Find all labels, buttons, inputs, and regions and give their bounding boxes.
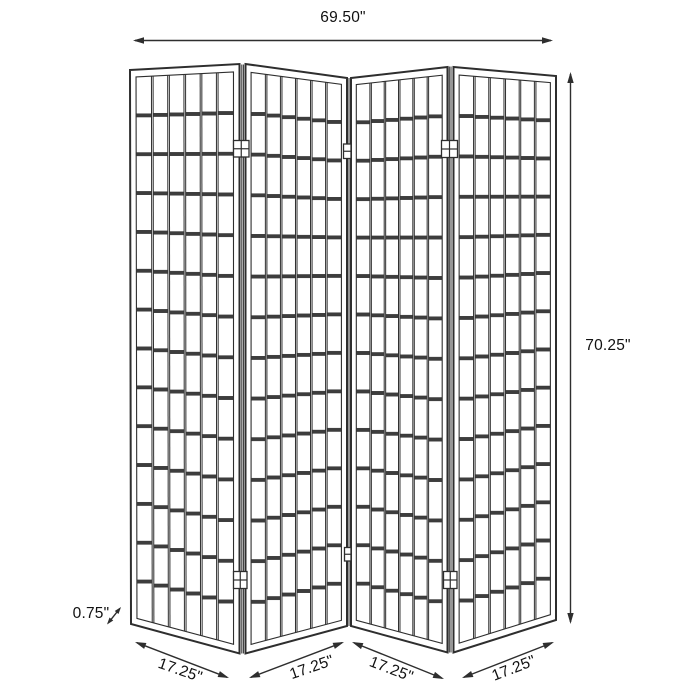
- grid-rail: [267, 436, 281, 439]
- grid-rail: [297, 393, 311, 396]
- grid-rail: [154, 388, 169, 391]
- grid-rail: [137, 541, 152, 544]
- grid-rail: [521, 543, 535, 546]
- grid-rail: [459, 397, 473, 400]
- grid-rail: [459, 276, 473, 279]
- grid-rail: [282, 275, 296, 278]
- grid-rail: [267, 315, 281, 318]
- grid-rail: [521, 311, 535, 314]
- grid-rail: [414, 196, 427, 199]
- grid-rail: [327, 505, 341, 508]
- grid-rail: [282, 553, 296, 556]
- grid-rail: [218, 559, 233, 562]
- grid-rail: [521, 427, 535, 430]
- width-dimension-arrow-head-start: [133, 37, 144, 43]
- hinge-bottom-1-2: [234, 572, 248, 589]
- grid-rail: [282, 434, 296, 437]
- grid-rail: [536, 157, 550, 160]
- grid-rail: [521, 118, 535, 121]
- grid-rail: [202, 434, 216, 437]
- grid-rail: [297, 314, 311, 317]
- grid-rail: [414, 116, 427, 119]
- grid-rail: [414, 156, 427, 159]
- grid-rail: [429, 600, 443, 603]
- grid-rail: [153, 113, 168, 116]
- grid-rail: [267, 275, 281, 278]
- grid-rail: [386, 550, 399, 553]
- grid-rail: [371, 275, 384, 278]
- grid-rail: [475, 395, 489, 398]
- grid-rail: [251, 559, 265, 562]
- grid-rail: [371, 158, 384, 161]
- grid-rail: [251, 275, 265, 278]
- grid-rail: [170, 350, 185, 353]
- grid-rail: [327, 236, 341, 239]
- grid-rail: [371, 197, 384, 200]
- grid-rail: [400, 236, 413, 239]
- grid-rail: [186, 392, 201, 395]
- grid-rail: [475, 195, 489, 198]
- grid-rail: [312, 391, 326, 394]
- grid-rail: [153, 349, 168, 352]
- grid-rail: [137, 580, 152, 583]
- grid-rail: [251, 600, 265, 603]
- grid-rail: [414, 276, 427, 279]
- grid-rail: [356, 159, 370, 162]
- grid-rail: [282, 195, 296, 198]
- grid-rail: [490, 195, 504, 198]
- panel-width-arrow-1-head-end: [218, 671, 229, 678]
- grid-rail: [153, 270, 168, 273]
- grid-rail: [218, 518, 233, 521]
- grid-rail: [536, 119, 550, 122]
- grid-rail: [386, 354, 399, 357]
- grid-rail: [218, 478, 233, 481]
- grid-rail: [356, 467, 370, 470]
- room-divider-dimension-diagram: 69.50" 70.25" 0.75" 17.25" 17.25" 17.25"…: [0, 0, 700, 700]
- grid-rail: [297, 235, 311, 238]
- grid-rail: [202, 313, 217, 316]
- grid-rail: [170, 588, 184, 591]
- grid-rail: [186, 352, 201, 355]
- grid-rail: [186, 112, 201, 115]
- grid-rail: [490, 472, 504, 475]
- grid-rail: [170, 271, 185, 274]
- grid-rail: [218, 193, 233, 196]
- grid-rail: [169, 113, 184, 116]
- grid-rail: [251, 153, 265, 156]
- height-dimension-arrow-head-start: [567, 72, 573, 83]
- grid-rail: [154, 545, 168, 548]
- grid-rail: [429, 115, 443, 118]
- grid-rail: [429, 276, 443, 279]
- grid-rail: [218, 111, 233, 114]
- grid-rail: [169, 192, 184, 195]
- grid-rail: [414, 556, 427, 559]
- grid-rail: [414, 396, 427, 399]
- grid-rail: [218, 356, 233, 359]
- grid-rail: [475, 315, 489, 318]
- grid-rail: [312, 430, 326, 433]
- grid-rail: [218, 233, 233, 236]
- grid-rail: [459, 114, 473, 117]
- grid-rail: [202, 112, 217, 115]
- panel-width-arrow-3-head-start: [352, 642, 363, 649]
- grid-rail: [356, 390, 370, 393]
- grid-rail: [536, 348, 550, 351]
- grid-rail: [490, 156, 504, 159]
- grid-rail: [312, 586, 326, 589]
- grid-rail: [414, 356, 427, 359]
- grid-rail: [267, 476, 281, 479]
- grid-rail: [459, 235, 473, 238]
- grid-rail: [202, 192, 217, 195]
- grid-rail: [136, 114, 151, 117]
- grid-rail: [459, 437, 473, 440]
- grid-rail: [202, 273, 217, 276]
- grid-rail: [475, 554, 489, 557]
- grid-rail: [521, 234, 535, 237]
- grid-rail: [536, 462, 550, 465]
- grid-rail: [429, 559, 443, 562]
- grid-rail: [506, 273, 520, 276]
- grid-rail: [327, 159, 341, 162]
- grid-rail: [429, 438, 443, 441]
- grid-rail: [327, 197, 341, 200]
- height-dimension-arrow-head-end: [567, 613, 573, 624]
- hinge-top-2-3: [344, 144, 352, 159]
- grid-rail: [312, 469, 326, 472]
- grid-rail: [282, 314, 296, 317]
- grid-rail: [170, 509, 184, 512]
- grid-rail: [475, 155, 489, 158]
- grid-rail: [282, 155, 296, 158]
- grid-rail: [267, 516, 281, 519]
- panel-width-arrow-2-head-start: [249, 671, 260, 678]
- grid-rail: [251, 356, 265, 359]
- grid-rail: [202, 233, 217, 236]
- grid-rail: [506, 508, 520, 511]
- grid-rail: [170, 232, 185, 235]
- grid-rail: [490, 235, 504, 238]
- grid-rail: [536, 195, 550, 198]
- grid-rail: [218, 274, 233, 277]
- grid-rail: [282, 474, 296, 477]
- grid-rail: [459, 558, 473, 561]
- grid-rail: [137, 386, 152, 389]
- hinge-bottom-3-4: [444, 572, 458, 589]
- grid-rail: [400, 474, 413, 477]
- grid-rail: [371, 508, 384, 511]
- grid-rail: [267, 154, 281, 157]
- grid-rail: [475, 594, 489, 597]
- grid-rail: [475, 355, 489, 358]
- grid-rail: [414, 316, 427, 319]
- panel-width-arrow-2-head-end: [333, 642, 344, 649]
- grid-rail: [282, 394, 296, 397]
- grid-rail: [400, 434, 413, 437]
- grid-rail: [386, 432, 399, 435]
- grid-rail: [186, 472, 200, 475]
- grid-rail: [282, 354, 296, 357]
- grid-rail: [136, 347, 151, 350]
- grid-rail: [356, 544, 370, 547]
- grid-rail: [429, 397, 443, 400]
- grid-rail: [521, 156, 535, 159]
- grid-rail: [297, 432, 311, 435]
- panel-width-arrow-3-head-end: [433, 672, 444, 679]
- grid-rail: [282, 115, 296, 118]
- grid-rail: [475, 515, 489, 518]
- grid-rail: [459, 599, 473, 602]
- grid-rail: [506, 234, 520, 237]
- grid-rail: [202, 394, 217, 397]
- grid-rail: [490, 511, 504, 514]
- grid-rail: [312, 547, 326, 550]
- grid-rail: [386, 589, 399, 592]
- grid-rail: [459, 195, 473, 198]
- grid-rail: [386, 471, 399, 474]
- grid-rail: [429, 195, 443, 198]
- panel-4: [454, 67, 557, 653]
- panel-width-arrow-1-head-start: [135, 642, 146, 649]
- grid-rail: [282, 513, 296, 516]
- grid-rail: [429, 357, 443, 360]
- grid-rail: [400, 513, 413, 516]
- grid-rail: [371, 547, 384, 550]
- grid-rail: [490, 353, 504, 356]
- grid-rail: [186, 192, 201, 195]
- grid-rail: [297, 353, 311, 356]
- grid-rail: [400, 394, 413, 397]
- grid-rail: [312, 508, 326, 511]
- grid-rail: [202, 152, 217, 155]
- grid-rail: [475, 115, 489, 118]
- grid-rail: [386, 197, 399, 200]
- grid-rail: [490, 116, 504, 119]
- grid-rail: [429, 155, 443, 158]
- width-dimension-arrow: [133, 37, 553, 43]
- grid-rail: [506, 351, 520, 354]
- grid-rail: [536, 539, 550, 542]
- grid-rail: [170, 548, 184, 551]
- grid-rail: [267, 235, 281, 238]
- grid-rail: [490, 393, 504, 396]
- grid-rail: [186, 152, 201, 155]
- grid-rail: [536, 501, 550, 504]
- overall-width-label: 69.50": [320, 9, 366, 27]
- grid-rail: [506, 547, 520, 550]
- grid-rail: [506, 195, 520, 198]
- grid-rail: [371, 236, 384, 239]
- grid-rail: [251, 234, 265, 237]
- grid-rail: [414, 236, 427, 239]
- grid-rail: [312, 274, 326, 277]
- grid-rail: [371, 119, 384, 122]
- grid-rail: [429, 519, 443, 522]
- grid-rail: [312, 158, 326, 161]
- grid-rail: [459, 155, 473, 158]
- grid-rail: [536, 424, 550, 427]
- grid-rail: [251, 397, 265, 400]
- grid-rail: [400, 355, 413, 358]
- grid-rail: [386, 236, 399, 239]
- grid-rail: [251, 316, 265, 319]
- grid-rail: [356, 505, 370, 508]
- grid-rail: [371, 352, 384, 355]
- grid-rail: [282, 593, 296, 596]
- grid-rail: [312, 119, 326, 122]
- grid-rail: [386, 393, 399, 396]
- grid-rail: [136, 308, 151, 311]
- grid-rail: [154, 505, 168, 508]
- grid-rail: [356, 197, 370, 200]
- grid-rail: [400, 117, 413, 120]
- panel-1: [130, 64, 240, 654]
- grid-rail: [327, 351, 341, 354]
- grid-rail: [153, 309, 168, 312]
- grid-rail: [521, 272, 535, 275]
- grid-rail: [356, 121, 370, 124]
- grid-rail: [521, 350, 535, 353]
- grid-rail: [371, 469, 384, 472]
- grid-rail: [136, 269, 151, 272]
- grid-rail: [356, 428, 370, 431]
- grid-rail: [267, 355, 281, 358]
- grid-rail: [414, 516, 427, 519]
- grid-rail: [327, 544, 341, 547]
- grid-rail: [386, 511, 399, 514]
- grid-rail: [202, 555, 216, 558]
- grid-rail: [536, 310, 550, 313]
- grid-rail: [371, 430, 384, 433]
- grid-rail: [490, 551, 504, 554]
- grid-rail: [202, 475, 216, 478]
- grid-rail: [506, 469, 520, 472]
- panel-width-arrow-4-head-end: [543, 642, 554, 649]
- grid-rail: [490, 314, 504, 317]
- hinge-top-3-4: [442, 141, 458, 158]
- grid-rail: [297, 196, 311, 199]
- grid-rail: [327, 428, 341, 431]
- grid-rail: [371, 586, 384, 589]
- grid-rail: [154, 584, 168, 587]
- grid-rail: [267, 194, 281, 197]
- panel-3: [351, 67, 448, 653]
- grid-rail: [218, 152, 233, 155]
- grid-rail: [371, 391, 384, 394]
- grid-rail: [327, 582, 341, 585]
- grid-rail: [490, 274, 504, 277]
- grid-rail: [327, 313, 341, 316]
- panel-thickness-label: 0.75": [73, 605, 110, 623]
- grid-rail: [202, 515, 216, 518]
- grid-rail: [297, 117, 311, 120]
- grid-rail: [218, 600, 233, 603]
- grid-rail: [475, 435, 489, 438]
- grid-rail: [521, 466, 535, 469]
- panel-2: [246, 64, 348, 654]
- grid-rail: [297, 511, 311, 514]
- grid-rail: [414, 476, 427, 479]
- grid-rail: [386, 275, 399, 278]
- grid-rail: [400, 157, 413, 160]
- grid-rail: [136, 153, 151, 156]
- grid-rail: [153, 152, 168, 155]
- grid-rail: [327, 390, 341, 393]
- grid-rail: [506, 156, 520, 159]
- overall-height-label: 70.25": [585, 337, 631, 355]
- grid-rail: [297, 471, 311, 474]
- grid-rail: [153, 231, 168, 234]
- grid-rail: [170, 311, 185, 314]
- grid-rail: [312, 235, 326, 238]
- grid-rail: [169, 152, 184, 155]
- grid-rail: [327, 467, 341, 470]
- grid-rail: [356, 274, 370, 277]
- grid-rail: [475, 275, 489, 278]
- grid-rail: [490, 432, 504, 435]
- grid-rail: [202, 596, 216, 599]
- grid-rail: [475, 475, 489, 478]
- grid-rail: [506, 429, 520, 432]
- grid-rail: [506, 586, 520, 589]
- grid-rail: [297, 274, 311, 277]
- grid-rail: [170, 469, 184, 472]
- hinge-bottom-2-3: [345, 548, 352, 562]
- grid-rail: [521, 581, 535, 584]
- grid-rail: [400, 553, 413, 556]
- grid-rail: [137, 463, 152, 466]
- grid-rail: [312, 196, 326, 199]
- grid-rail: [536, 233, 550, 236]
- grid-rail: [400, 315, 413, 318]
- grid-rail: [153, 192, 168, 195]
- grid-rail: [386, 314, 399, 317]
- grid-rail: [186, 552, 200, 555]
- grid-rail: [459, 478, 473, 481]
- grid-rail: [186, 272, 201, 275]
- grid-rail: [267, 395, 281, 398]
- grid-rail: [459, 357, 473, 360]
- grid-rail: [267, 114, 281, 117]
- grid-rail: [356, 313, 370, 316]
- grid-rail: [490, 590, 504, 593]
- grid-rail: [297, 589, 311, 592]
- grid-rail: [218, 396, 233, 399]
- grid-rail: [154, 427, 168, 430]
- grid-rail: [536, 386, 550, 389]
- grid-rail: [356, 351, 370, 354]
- grid-rail: [429, 478, 443, 481]
- grid-rail: [371, 314, 384, 317]
- grid-rail: [414, 596, 427, 599]
- grid-rail: [186, 512, 200, 515]
- grid-rail: [506, 312, 520, 315]
- grid-rail: [536, 577, 550, 580]
- grid-rail: [267, 596, 281, 599]
- grid-rail: [475, 235, 489, 238]
- grid-rail: [137, 424, 152, 427]
- grid-rail: [506, 117, 520, 120]
- grid-rail: [521, 195, 535, 198]
- grid-rail: [136, 230, 151, 233]
- grid-rail: [170, 429, 184, 432]
- grid-rail: [202, 354, 217, 357]
- hinge-top-1-2: [234, 141, 250, 158]
- grid-rail: [506, 390, 520, 393]
- grid-rail: [459, 518, 473, 521]
